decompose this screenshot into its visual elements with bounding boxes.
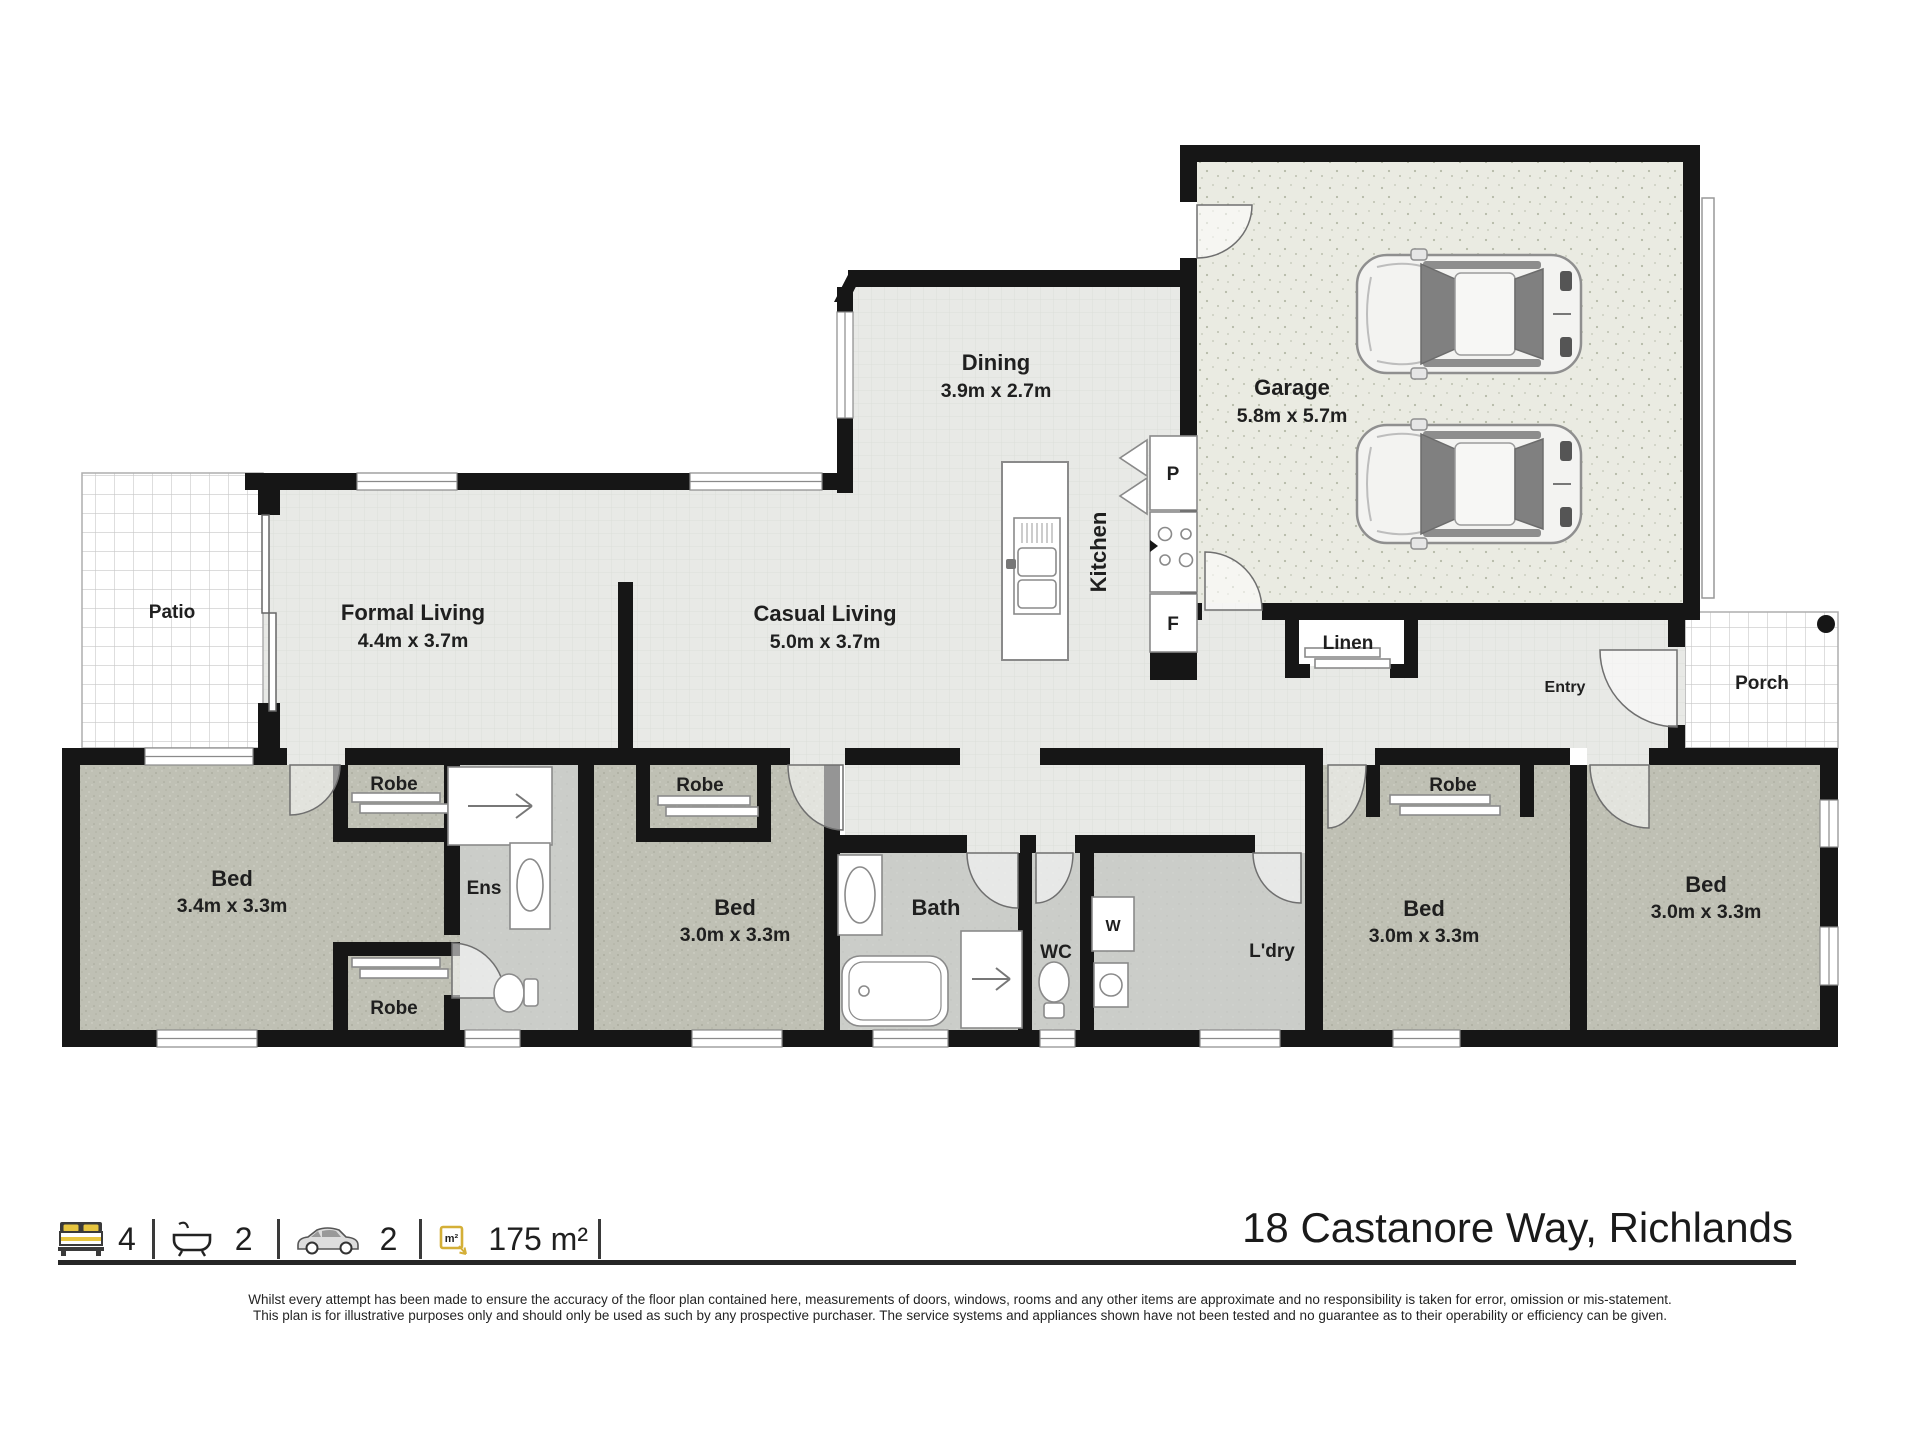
label-bath: Bath xyxy=(912,895,961,920)
bath-count: 2 xyxy=(235,1221,253,1258)
label-garage: Garage xyxy=(1254,375,1330,400)
toilet-wc xyxy=(1039,962,1069,1018)
label-kitchen: Kitchen xyxy=(1086,512,1111,593)
area-value: 175 m² xyxy=(488,1221,588,1258)
window xyxy=(873,1030,948,1047)
window xyxy=(145,748,253,765)
floorplan-drawing: Patio Formal Living 4.4m x 3.7m Casual L… xyxy=(0,0,1920,1160)
label-bed4-dims: 3.0m x 3.3m xyxy=(1651,901,1762,923)
bathtub xyxy=(842,956,948,1026)
legend-divider xyxy=(152,1219,155,1259)
label-laundry: L'dry xyxy=(1249,941,1295,962)
label-bed3: Bed xyxy=(1403,896,1445,921)
svg-text:m²: m² xyxy=(445,1233,459,1245)
sink-bowl xyxy=(1018,580,1056,608)
window xyxy=(1820,927,1838,985)
car-icon xyxy=(1357,249,1581,379)
window xyxy=(1820,800,1838,847)
label-fridge: F xyxy=(1167,614,1179,635)
label-wc: WC xyxy=(1040,942,1072,963)
entry-floor xyxy=(1197,620,1668,748)
label-washer: W xyxy=(1105,918,1121,935)
label-patio: Patio xyxy=(149,602,195,623)
label-robe4: Robe xyxy=(1429,775,1477,796)
label-formal-living: Formal Living xyxy=(341,600,485,625)
disclaimer-line2: This plan is for illustrative purposes o… xyxy=(0,1308,1920,1324)
legend-divider xyxy=(419,1219,422,1259)
label-entry: Entry xyxy=(1545,679,1586,696)
label-garage-dims: 5.8m x 5.7m xyxy=(1237,405,1348,427)
car-side-icon xyxy=(294,1223,362,1255)
bed-icon xyxy=(58,1220,104,1258)
shower-ens xyxy=(448,767,552,845)
window xyxy=(837,312,853,418)
label-porch: Porch xyxy=(1735,673,1789,694)
stove-icon xyxy=(1150,512,1197,592)
window xyxy=(1393,1030,1460,1047)
label-pantry: P xyxy=(1167,464,1180,485)
label-dining: Dining xyxy=(962,350,1030,375)
porch-post xyxy=(1817,615,1835,633)
car-count: 2 xyxy=(380,1221,398,1258)
area-icon: m² xyxy=(438,1221,468,1257)
garage-door xyxy=(1702,198,1714,598)
label-bed2: Bed xyxy=(714,895,756,920)
label-bed4: Bed xyxy=(1685,872,1727,897)
label-robe2: Robe xyxy=(370,998,418,1019)
bath-icon xyxy=(171,1220,213,1258)
window xyxy=(157,1030,257,1047)
legend-bar: 4 2 2 m² 175 m² xyxy=(58,1216,601,1262)
window xyxy=(690,473,822,490)
label-formal-living-dims: 4.4m x 3.7m xyxy=(358,630,469,652)
bed-count: 4 xyxy=(118,1221,136,1258)
basin-bath xyxy=(838,855,882,935)
disclaimer-line1: Whilst every attempt has been made to en… xyxy=(0,1292,1920,1308)
tap-icon xyxy=(1006,559,1016,569)
label-casual-living-dims: 5.0m x 3.7m xyxy=(770,631,881,653)
legend-divider xyxy=(277,1219,280,1259)
disclaimer: Whilst every attempt has been made to en… xyxy=(0,1292,1920,1324)
label-bed1: Bed xyxy=(211,866,253,891)
kitchen-island xyxy=(1002,462,1068,660)
footer-rule xyxy=(58,1260,1796,1265)
toilet-ens xyxy=(494,974,538,1012)
label-bed1-dims: 3.4m x 3.3m xyxy=(177,895,288,917)
floorplan-page: Patio Formal Living 4.4m x 3.7m Casual L… xyxy=(0,0,1920,1440)
shower-bath xyxy=(961,931,1022,1028)
sink-bowl xyxy=(1018,548,1056,576)
window xyxy=(465,1030,520,1047)
label-ens: Ens xyxy=(467,878,502,899)
window xyxy=(357,473,457,490)
label-casual-living: Casual Living xyxy=(753,601,896,626)
window xyxy=(1040,1030,1075,1047)
label-bed2-dims: 3.0m x 3.3m xyxy=(680,924,791,946)
property-address: 18 Castanore Way, Richlands xyxy=(1242,1204,1793,1252)
car-icon xyxy=(1357,419,1581,549)
window xyxy=(692,1030,782,1047)
label-robe3: Robe xyxy=(676,775,724,796)
living-floor xyxy=(262,490,853,765)
label-bed3-dims: 3.0m x 3.3m xyxy=(1369,925,1480,947)
basin-ens xyxy=(510,843,550,929)
label-linen: Linen xyxy=(1323,633,1374,654)
label-dining-dims: 3.9m x 2.7m xyxy=(941,380,1052,402)
laundry-tub xyxy=(1094,963,1128,1007)
label-robe1: Robe xyxy=(370,774,418,795)
legend-divider xyxy=(598,1219,601,1259)
window xyxy=(1200,1030,1280,1047)
